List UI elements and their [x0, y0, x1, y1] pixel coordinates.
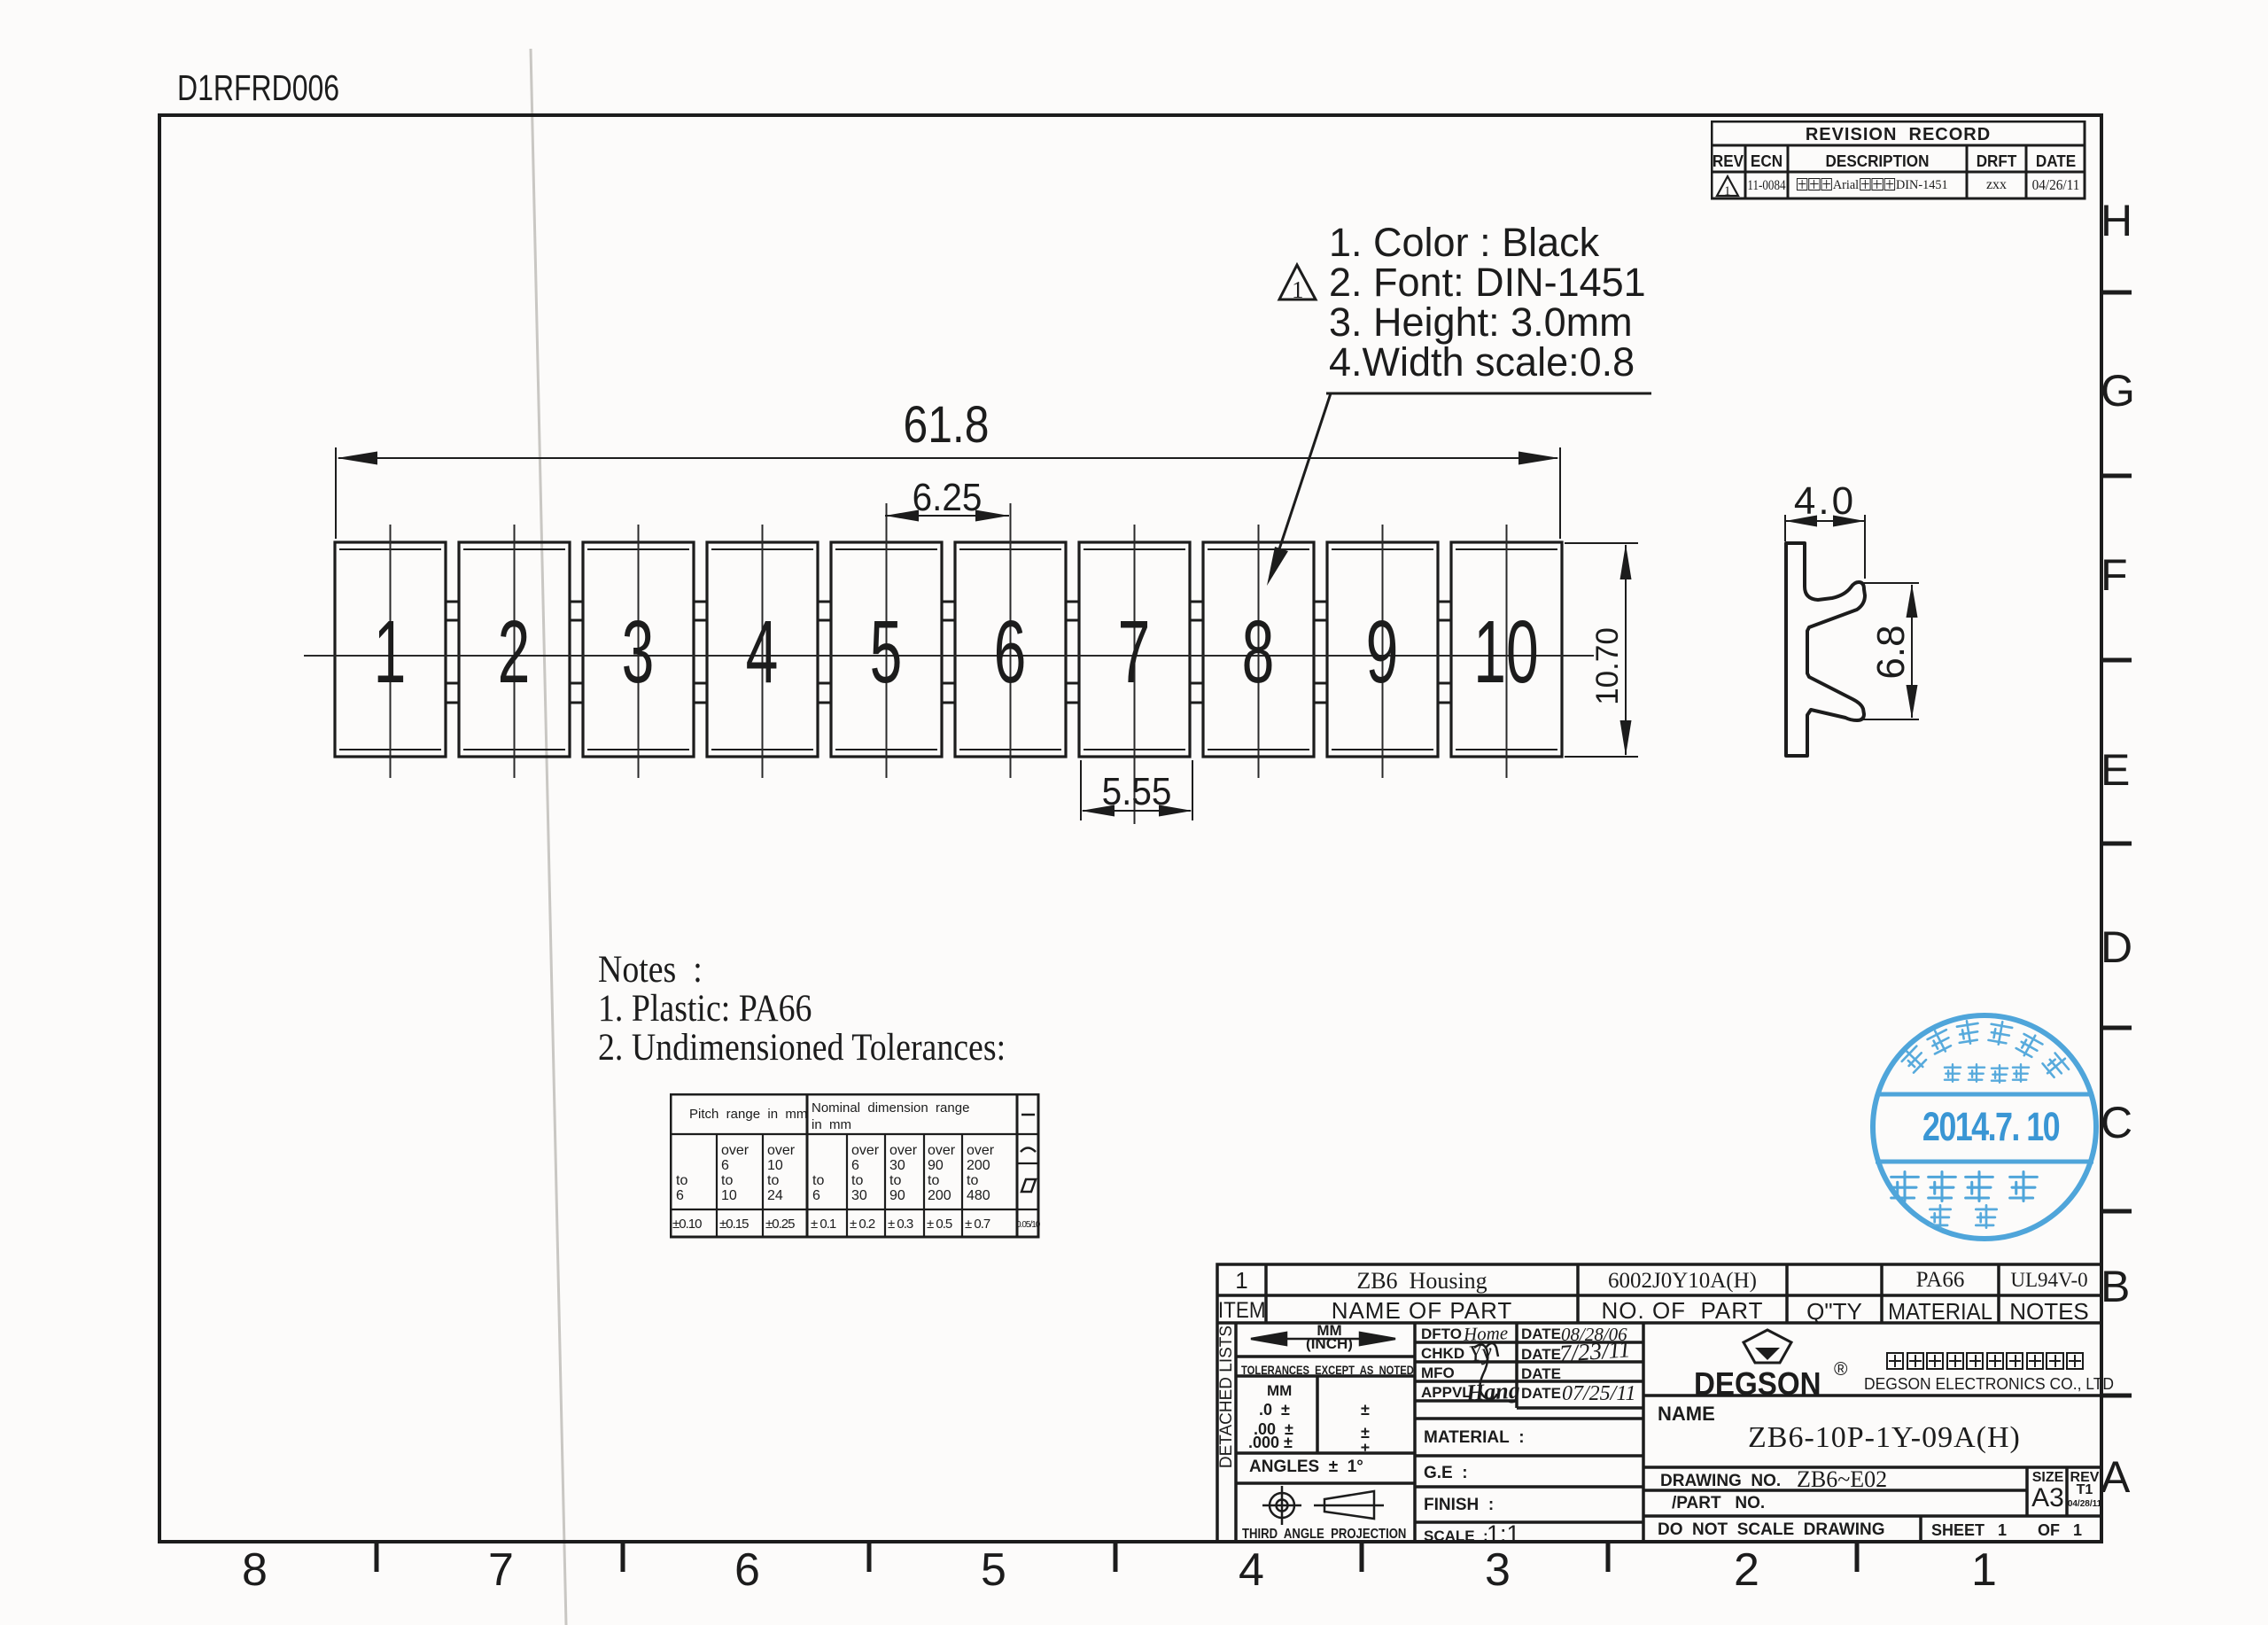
svg-text:1: 1	[1292, 276, 1304, 303]
svg-text:1: 1	[1724, 184, 1731, 198]
